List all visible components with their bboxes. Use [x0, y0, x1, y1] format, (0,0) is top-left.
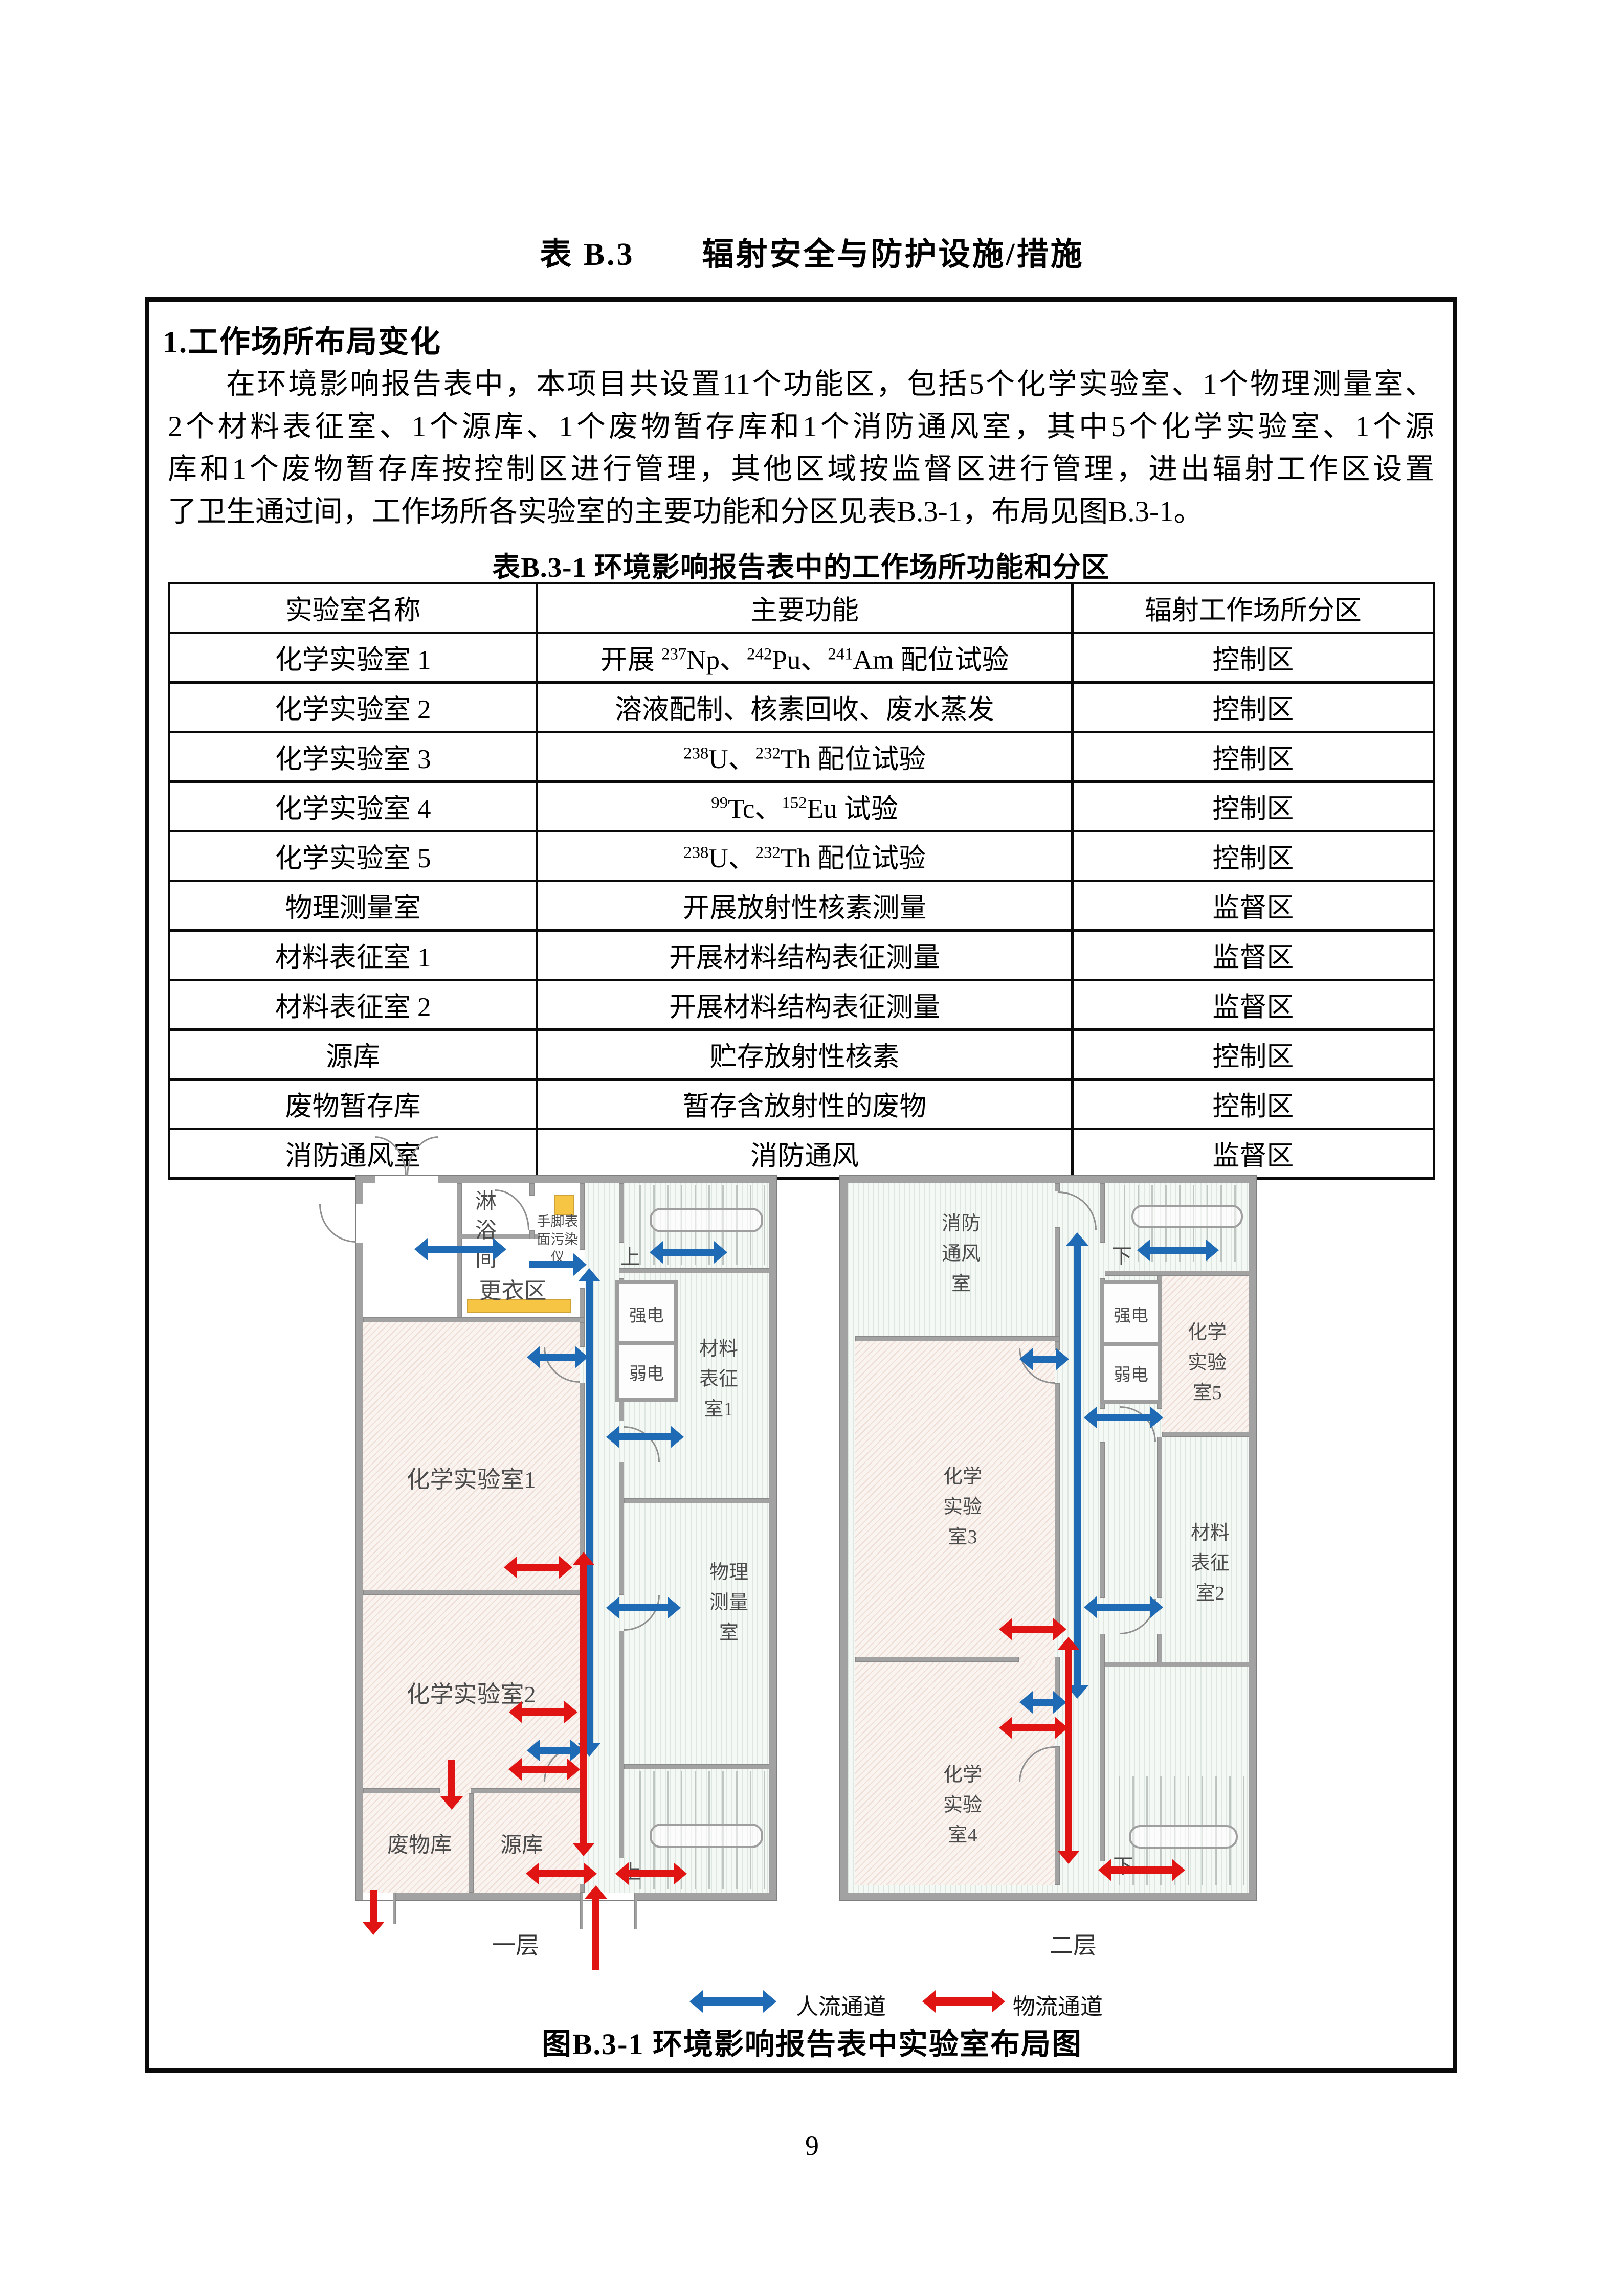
legend-people-flow-label: 人流通道 — [796, 1988, 886, 2021]
wall — [1105, 1662, 1249, 1667]
cell-main-function: 消防通风 — [537, 1129, 1072, 1179]
wall — [363, 1788, 440, 1793]
cell-lab-name: 化学实验室 5 — [169, 831, 537, 881]
room-label-material-room-2: 材料 表征 室2 — [1180, 1518, 1240, 1609]
table-row: 消防通风室消防通风监督区 — [169, 1129, 1434, 1179]
people-flow-arrow — [540, 1747, 570, 1754]
cell-zone: 控制区 — [1072, 633, 1434, 683]
cell-main-function: 开展 237Np、242Pu、241Am 配位试验 — [537, 633, 1072, 683]
cell-zone: 控制区 — [1072, 782, 1434, 831]
wall — [1055, 1746, 1060, 1885]
people-flow-arrow — [1150, 1247, 1206, 1254]
table-row: 化学实验室 499Tc、152Eu 试验控制区 — [169, 782, 1434, 831]
room-label-changing-area: 更衣区 — [465, 1272, 560, 1305]
room-label-chem-lab-5: 化学 实验 室5 — [1176, 1318, 1238, 1408]
cell-lab-name: 化学实验室 4 — [169, 782, 537, 831]
table-row: 化学实验室 5238U、232Th 配位试验控制区 — [169, 831, 1434, 881]
people-flow-arrow — [428, 1246, 493, 1253]
people-flow-arrow — [619, 1433, 671, 1440]
cell-zone: 监督区 — [1072, 1129, 1434, 1179]
wall — [1055, 1227, 1060, 1341]
cell-main-function: 开展放射性核素测量 — [537, 881, 1072, 931]
floor2-caption: 二层 — [1050, 1927, 1097, 1961]
contamination-monitor-marker — [554, 1195, 574, 1215]
people-flow-arrow — [619, 1604, 668, 1611]
col-header-main-function: 主要功能 — [537, 583, 1072, 633]
cell-zone: 控制区 — [1072, 683, 1434, 732]
wall — [457, 1183, 462, 1322]
room-label-source-store: 源库 — [488, 1828, 555, 1859]
waste-door-gap — [363, 1893, 394, 1900]
door-frame — [634, 1893, 637, 1929]
side-door-gap — [356, 1204, 363, 1243]
people-flow-arrow — [663, 1249, 714, 1256]
wall — [855, 1336, 1060, 1341]
wall — [619, 1183, 624, 1243]
col-header-lab-name: 实验室名称 — [169, 583, 537, 633]
room-label-strong-power: 强电 — [619, 1301, 674, 1326]
room-label-weak-power: 弱电 — [619, 1360, 674, 1385]
table-header: 实验室名称 主要功能 辐射工作场所分区 — [169, 583, 1434, 633]
cell-main-function: 开展材料结构表征测量 — [537, 980, 1072, 1030]
cell-lab-name: 化学实验室 1 — [169, 633, 537, 683]
figure-caption: 图B.3-1 环境影响报告表中实验室布局图 — [0, 2020, 1624, 2063]
cell-main-function: 暂存含放射性的废物 — [537, 1079, 1072, 1129]
stairs-down-label-top: 下 — [1108, 1240, 1135, 1269]
table-row: 化学实验室 1开展 237Np、242Pu、241Am 配位试验控制区 — [169, 633, 1434, 683]
wall — [580, 1383, 585, 1557]
cell-lab-name: 消防通风室 — [169, 1129, 537, 1179]
section-heading: 1.工作场所布局变化 — [163, 317, 441, 362]
wall — [1100, 1442, 1105, 1598]
wall — [580, 1884, 585, 1893]
cell-zone: 监督区 — [1072, 881, 1434, 931]
table-row: 化学实验室 2溶液配制、核素回收、废水蒸发控制区 — [169, 683, 1434, 732]
document-page: 表 B.3 辐射安全与防护设施/措施 1.工作场所布局变化 在环境影响报告表中，… — [0, 0, 1624, 2296]
page-title: 表 B.3 辐射安全与防护设施/措施 — [0, 228, 1624, 274]
cell-lab-name: 材料表征室 1 — [169, 931, 537, 980]
cell-zone: 监督区 — [1072, 931, 1434, 980]
cell-main-function: 贮存放射性核素 — [537, 1030, 1072, 1079]
page-number: 9 — [0, 2130, 1624, 2162]
room-label-chem-lab-1: 化学实验室1 — [393, 1461, 549, 1495]
door-frame — [393, 1893, 396, 1924]
stairs-up-label-top: 上 — [617, 1241, 643, 1270]
room-label-chem-lab-3: 化学 实验 室3 — [932, 1462, 993, 1552]
wall — [363, 1590, 585, 1595]
floor-plan-1: 强电 弱电 淋 浴 间 手脚表 面污染 仪 更衣区 化学实验室1 化学实验室2 … — [356, 1176, 776, 1900]
paragraph-line: 了卫生通过间，工作场所各实验室的主要功能和分区见表B.3-1，布局见图B.3-1… — [168, 490, 1434, 533]
people-flow-arrow — [1033, 1356, 1056, 1363]
material-flow-arrow — [1065, 1650, 1072, 1851]
table-row: 化学实验室 3238U、232Th 配位试验控制区 — [169, 732, 1434, 782]
cell-lab-name: 化学实验室 3 — [169, 732, 537, 782]
room-label-strong-power: 强电 — [1104, 1301, 1158, 1326]
wall — [1100, 1183, 1105, 1243]
cell-main-function: 238U、232Th 配位试验 — [537, 732, 1072, 782]
door-frame — [580, 1893, 583, 1929]
room-label-fire-vent: 消防 通风 室 — [931, 1209, 991, 1299]
room-label-material-room-1: 材料 表征 室1 — [687, 1334, 750, 1425]
cell-zone: 控制区 — [1072, 831, 1434, 881]
cell-lab-name: 源库 — [169, 1030, 537, 1079]
people-flow-arrow — [1074, 1246, 1081, 1685]
floor-plan-2: 强电 弱电 消防 通风 室 化学 实验 室3 化学 实验 室4 化学 实验 室5… — [840, 1176, 1256, 1900]
material-flow-arrow — [539, 1870, 584, 1877]
function-table: 实验室名称 主要功能 辐射工作场所分区 化学实验室 1开展 237Np、242P… — [168, 582, 1435, 1180]
room-label-waste-store: 废物库 — [381, 1828, 458, 1859]
cell-lab-name: 化学实验室 2 — [169, 683, 537, 732]
table-header-row: 实验室名称 主要功能 辐射工作场所分区 — [169, 583, 1434, 633]
table-row: 废物暂存库暂存含放射性的废物控制区 — [169, 1079, 1434, 1129]
table-row: 材料表征室 2开展材料结构表征测量监督区 — [169, 980, 1434, 1030]
people-flow-arrow — [540, 1354, 575, 1361]
intro-paragraph: 在环境影响报告表中，本项目共设置11个功能区，包括5个化学实验室、1个物理测量室… — [168, 363, 1434, 533]
material-flow-arrow — [629, 1870, 674, 1877]
room-label-weak-power: 弱电 — [1104, 1361, 1158, 1386]
cell-zone: 控制区 — [1072, 732, 1434, 782]
cell-lab-name: 废物暂存库 — [169, 1079, 537, 1129]
paragraph-line: 2个材料表征室、1个源库、1个废物暂存库和1个消防通风室，其中5个化学实验室、1… — [168, 406, 1434, 448]
cell-main-function: 开展材料结构表征测量 — [537, 931, 1072, 980]
wall — [1157, 1437, 1162, 1598]
electrical-shaft: 强电 弱电 — [615, 1280, 678, 1402]
floor1-caption: 一层 — [492, 1927, 539, 1961]
material-flow-arrow — [517, 1564, 559, 1571]
staircase-handrail — [1131, 1205, 1243, 1228]
paragraph-line: 在环境影响报告表中，本项目共设置11个功能区，包括5个化学实验室、1个物理测量室… — [168, 363, 1434, 406]
people-flow-arrow — [1097, 1414, 1150, 1421]
cell-zone: 监督区 — [1072, 980, 1434, 1030]
cell-main-function: 99Tc、152Eu 试验 — [537, 782, 1072, 831]
wall — [580, 1322, 585, 1347]
legend-material-flow-label: 物流通道 — [1013, 1988, 1103, 2021]
wall — [619, 1462, 624, 1595]
material-flow-arrow — [580, 1565, 587, 1843]
material-flow-arrow — [1012, 1626, 1053, 1633]
material-flow-arrow — [1012, 1724, 1055, 1731]
material-flow-arrow — [370, 1890, 377, 1922]
cell-zone: 控制区 — [1072, 1079, 1434, 1129]
wall — [619, 1341, 674, 1345]
material-flow-arrow — [522, 1708, 564, 1716]
room-label-chem-lab-4: 化学 实验 室4 — [932, 1760, 993, 1851]
wall — [1055, 1183, 1060, 1191]
wall — [363, 1317, 585, 1322]
wall — [624, 1498, 769, 1503]
cell-main-function: 溶液配制、核素回收、废水蒸发 — [537, 683, 1072, 732]
staircase-handrail — [1129, 1825, 1238, 1849]
cell-main-function: 238U、232Th 配位试验 — [537, 831, 1072, 881]
cell-lab-name: 物理测量室 — [169, 881, 537, 931]
room-label-shower: 淋 浴 间 — [468, 1187, 504, 1274]
wall — [855, 1657, 1019, 1662]
entry-door-gap — [375, 1176, 438, 1183]
people-flow-arrow — [529, 1261, 573, 1268]
wall — [469, 1793, 474, 1893]
people-flow-arrow — [1097, 1604, 1150, 1611]
room-chem-lab-1 — [363, 1322, 580, 1595]
stairs-down-label-bottom: 下 — [1110, 1850, 1137, 1879]
material-flow-arrow — [522, 1766, 567, 1773]
wall — [624, 1764, 769, 1769]
legend-people-flow-arrow — [703, 1997, 763, 2006]
table-row: 物理测量室开展放射性核素测量监督区 — [169, 881, 1434, 931]
table-body: 化学实验室 1开展 237Np、242Pu、241Am 配位试验控制区化学实验室… — [169, 633, 1434, 1179]
table-row: 源库贮存放射性核素控制区 — [169, 1030, 1434, 1079]
room-label-chem-lab-2: 化学实验室2 — [393, 1676, 549, 1709]
material-flow-arrow — [1111, 1866, 1172, 1874]
material-flow-arrow — [592, 1899, 599, 1970]
wall — [1100, 1634, 1105, 1861]
wall — [471, 1788, 585, 1793]
cell-lab-name: 材料表征室 2 — [169, 980, 537, 1030]
wall — [1104, 1342, 1158, 1346]
staircase-handrail — [650, 1208, 763, 1232]
people-flow-arrow — [1033, 1699, 1053, 1706]
wall — [619, 1631, 624, 1858]
wall — [1105, 1271, 1249, 1276]
wall — [529, 1183, 535, 1196]
legend-material-flow-arrow — [936, 1997, 992, 2006]
material-flow-arrow — [448, 1760, 455, 1796]
room-label-physics-room: 物理 测量 室 — [698, 1558, 760, 1648]
wall — [1162, 1432, 1249, 1437]
table-caption: 表B.3-1 环境影响报告表中的工作场所功能和分区 — [149, 544, 1453, 585]
cell-zone: 控制区 — [1072, 1030, 1434, 1079]
paragraph-line: 库和1个废物暂存库按控制区进行管理，其他区域按监督区进行管理，进出辐射工作区设置 — [168, 448, 1434, 490]
col-header-zone: 辐射工作场所分区 — [1072, 583, 1434, 633]
content-box: 1.工作场所布局变化 在环境影响报告表中，本项目共设置11个功能区，包括5个化学… — [145, 297, 1457, 2073]
staircase-handrail — [650, 1824, 763, 1848]
wall — [1055, 1383, 1060, 1624]
table-row: 材料表征室 1开展材料结构表征测量监督区 — [169, 931, 1434, 980]
electrical-shaft: 强电 弱电 — [1100, 1280, 1162, 1404]
